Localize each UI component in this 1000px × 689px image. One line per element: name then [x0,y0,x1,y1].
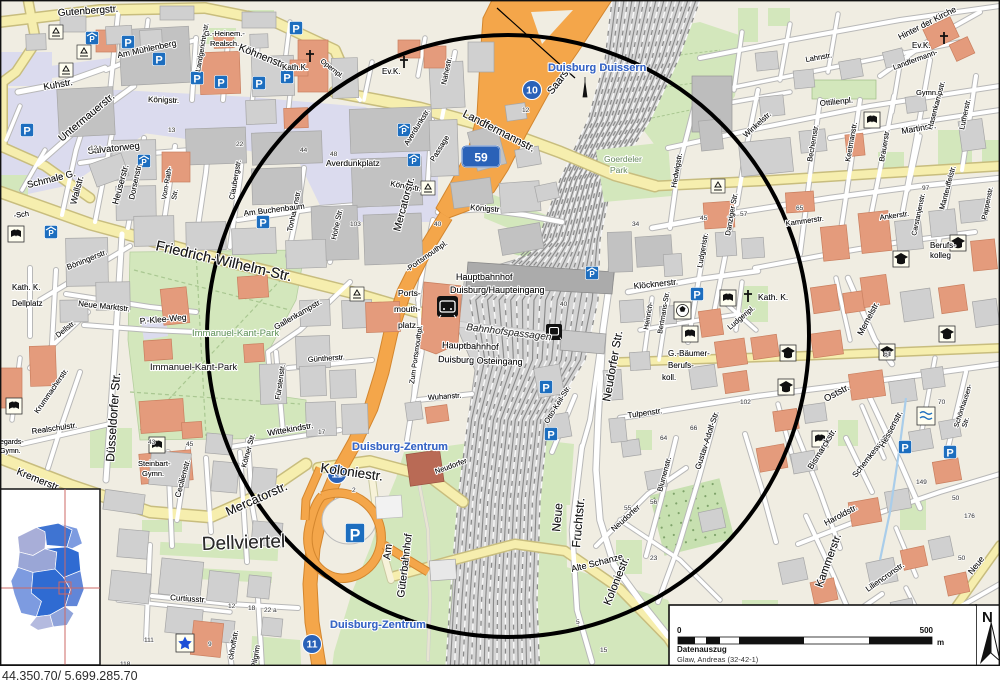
svg-text:P: P [255,78,262,90]
svg-text:50: 50 [958,555,966,562]
svg-text:Dellplatz: Dellplatz [12,299,43,308]
svg-text:P: P [217,77,224,89]
svg-text:40: 40 [560,301,568,308]
svg-text:Duisburg-Zentrum: Duisburg-Zentrum [330,619,426,631]
svg-text:Duisburg/Haupteingang: Duisburg/Haupteingang [450,285,545,295]
svg-text:P: P [259,217,266,229]
svg-text:Averdunkplatz: Averdunkplatz [326,158,380,168]
svg-text:P: P [48,229,54,238]
svg-text:kolleg: kolleg [930,251,951,260]
svg-text:102: 102 [740,399,751,406]
svg-text:Glaw, Andreas (32-42-1): Glaw, Andreas (32-42-1) [677,655,759,664]
svg-text:platz: platz [398,320,416,330]
svg-text:500: 500 [920,626,934,635]
svg-text:12: 12 [228,603,236,610]
svg-text:Neue: Neue [549,502,565,532]
svg-text:45: 45 [700,215,708,222]
svg-text:Duisburg-Zentrum: Duisburg-Zentrum [352,441,448,453]
svg-text:44: 44 [300,147,308,154]
svg-text:12: 12 [522,107,530,114]
svg-text:Kath.K.: Kath.K. [282,63,308,72]
svg-text:P: P [350,526,361,544]
svg-text:59: 59 [474,151,488,165]
svg-text:55: 55 [624,505,632,512]
svg-text:22: 22 [236,141,244,148]
svg-text:17: 17 [318,429,326,436]
svg-text:P: P [946,447,953,459]
svg-text:Dellviertel: Dellviertel [201,531,285,555]
svg-text:13: 13 [168,127,176,134]
svg-text:Berufs-: Berufs- [668,361,694,370]
svg-text:Goerdeler: Goerdeler [604,154,642,164]
svg-text:koll.: koll. [662,373,676,382]
svg-text:P: P [693,289,700,301]
svg-text:23: 23 [650,555,658,562]
svg-text:P: P [547,429,554,441]
svg-text:Kath. K.: Kath. K. [12,283,40,292]
svg-text:111: 111 [144,637,154,644]
svg-text:66: 66 [690,425,698,432]
svg-text:Gymn.: Gymn. [142,469,164,478]
svg-text:103: 103 [350,221,361,228]
svg-text:G.-Heinem.-: G.-Heinem.- [204,29,245,38]
svg-text:12: 12 [90,145,98,152]
svg-text:0: 0 [677,626,682,635]
svg-text:Königstr.: Königstr. [148,95,179,105]
svg-text:97: 97 [922,185,930,192]
svg-text:P: P [193,73,200,85]
svg-text:10: 10 [526,85,538,97]
svg-text:m: m [937,638,944,647]
svg-text:Gymn.: Gymn. [0,448,21,455]
svg-text:P: P [411,157,417,166]
svg-text:Duisburg Duissern: Duisburg Duissern [548,62,647,74]
svg-text:Hauptbahnhof: Hauptbahnhof [442,340,499,352]
svg-text:Hauptbahnhof: Hauptbahnhof [456,272,513,282]
svg-text:Datenauszug: Datenauszug [677,645,727,654]
svg-text:Ev.K.: Ev.K. [382,67,401,76]
svg-text:P: P [89,35,95,44]
svg-text:34: 34 [632,221,640,228]
svg-text:56: 56 [650,499,658,506]
svg-text:18: 18 [248,605,256,612]
svg-text:48: 48 [330,151,338,158]
svg-text:44.350.70/ 5.699.285.70: 44.350.70/ 5.699.285.70 [2,669,138,683]
svg-text:egards-: egards- [0,439,24,446]
svg-text:40: 40 [434,221,442,228]
svg-text:P: P [155,54,162,66]
svg-text:Kath. K.: Kath. K. [758,292,788,302]
svg-text:Immanuel-Kant-Park: Immanuel-Kant-Park [192,328,279,339]
svg-text:45: 45 [186,441,194,448]
svg-text:P: P [292,23,299,35]
svg-text:9: 9 [208,641,212,648]
svg-text:5: 5 [576,619,580,626]
svg-text:P: P [283,72,290,84]
svg-text:Park: Park [610,165,628,175]
svg-text:P: P [901,442,908,454]
svg-text:65: 65 [796,205,804,212]
svg-text:61: 61 [884,351,892,358]
svg-text:mouth-: mouth- [394,304,421,314]
svg-text:Ports-: Ports- [398,288,421,298]
svg-text:11: 11 [306,639,317,651]
svg-text:Ev.K.: Ev.K. [912,41,931,50]
svg-text:57: 57 [740,211,748,218]
svg-text:50: 50 [952,495,960,502]
svg-text:64: 64 [660,435,668,442]
svg-text:G.-Bäumer-: G.-Bäumer- [668,349,710,358]
svg-text:P: P [542,382,549,394]
svg-text:Berufs-: Berufs- [930,241,956,250]
svg-text:2: 2 [352,487,356,494]
svg-text:Gymn.: Gymn. [916,88,938,97]
svg-text:176: 176 [964,513,975,520]
svg-text:P: P [589,270,595,279]
svg-text:P: P [23,125,30,137]
svg-text:Immanuel-Kant-Park: Immanuel-Kant-Park [150,362,237,373]
svg-text:22 a: 22 a [264,607,277,614]
svg-text:70: 70 [938,399,946,406]
svg-text:149: 149 [916,479,927,486]
svg-text:43: 43 [148,439,156,446]
svg-text:Am: Am [381,543,395,560]
svg-text:Realsch.: Realsch. [210,39,239,48]
svg-text:Steinbart-: Steinbart- [138,459,171,468]
svg-text:15: 15 [600,647,608,654]
